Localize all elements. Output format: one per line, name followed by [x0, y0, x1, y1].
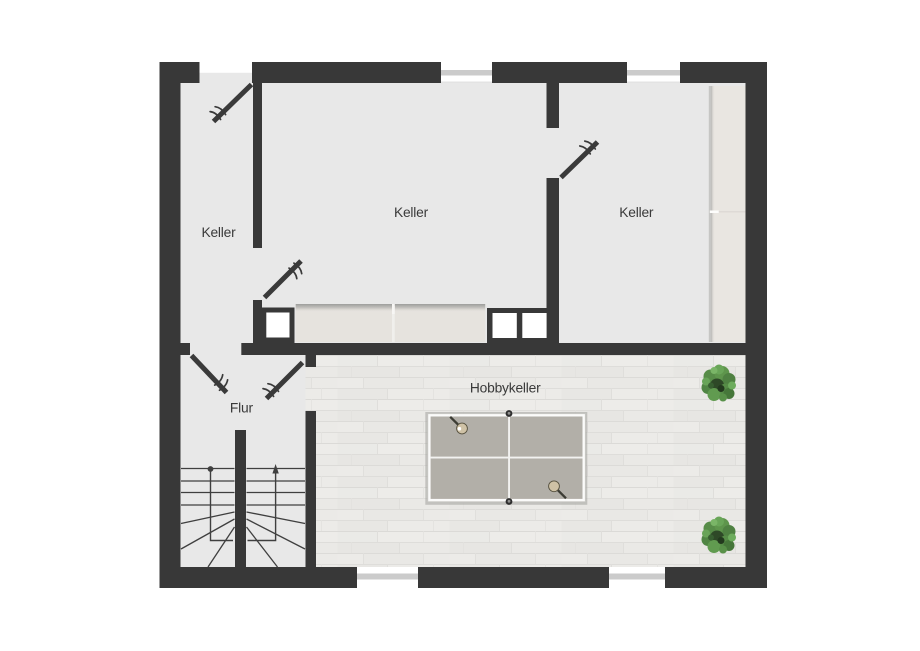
svg-text:Keller: Keller: [619, 205, 654, 220]
svg-text:Keller: Keller: [394, 205, 429, 220]
svg-text:Hobbykeller: Hobbykeller: [470, 381, 541, 396]
svg-text:Keller: Keller: [201, 225, 236, 240]
svg-text:Flur: Flur: [230, 401, 254, 416]
